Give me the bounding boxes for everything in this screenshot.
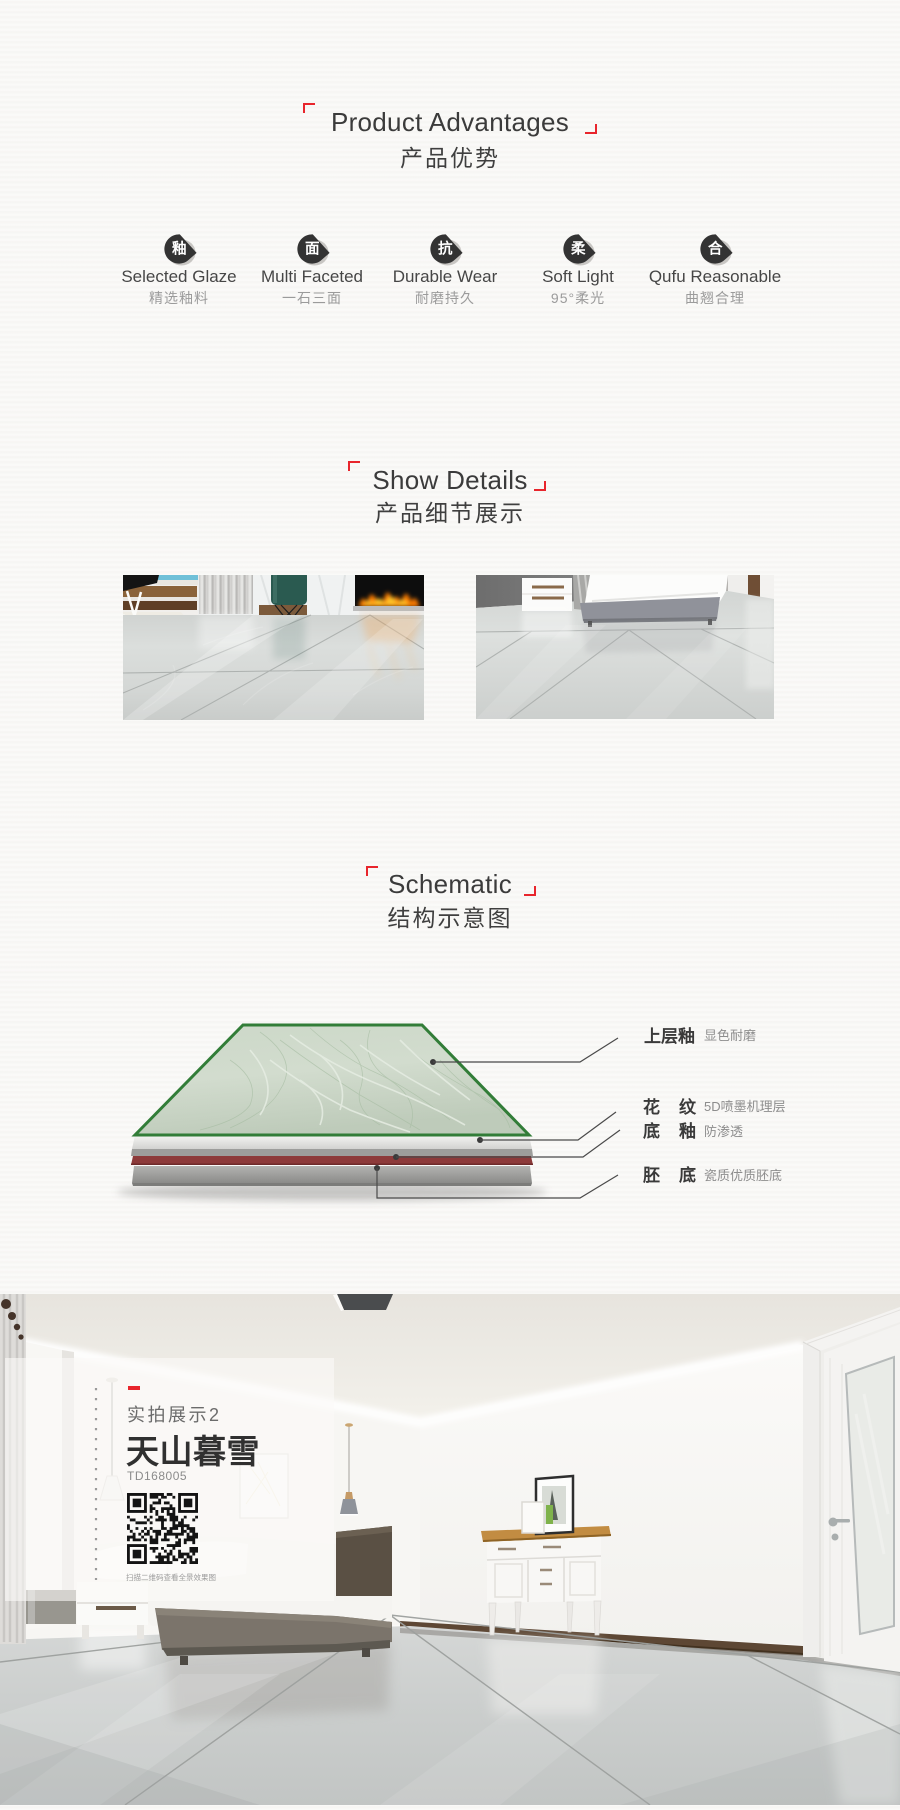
svg-text:釉: 釉 <box>172 240 187 258</box>
svg-text:抗: 抗 <box>438 240 453 258</box>
svg-text:合: 合 <box>707 240 723 258</box>
svg-text:面: 面 <box>305 241 320 258</box>
svg-text:柔: 柔 <box>571 241 586 258</box>
